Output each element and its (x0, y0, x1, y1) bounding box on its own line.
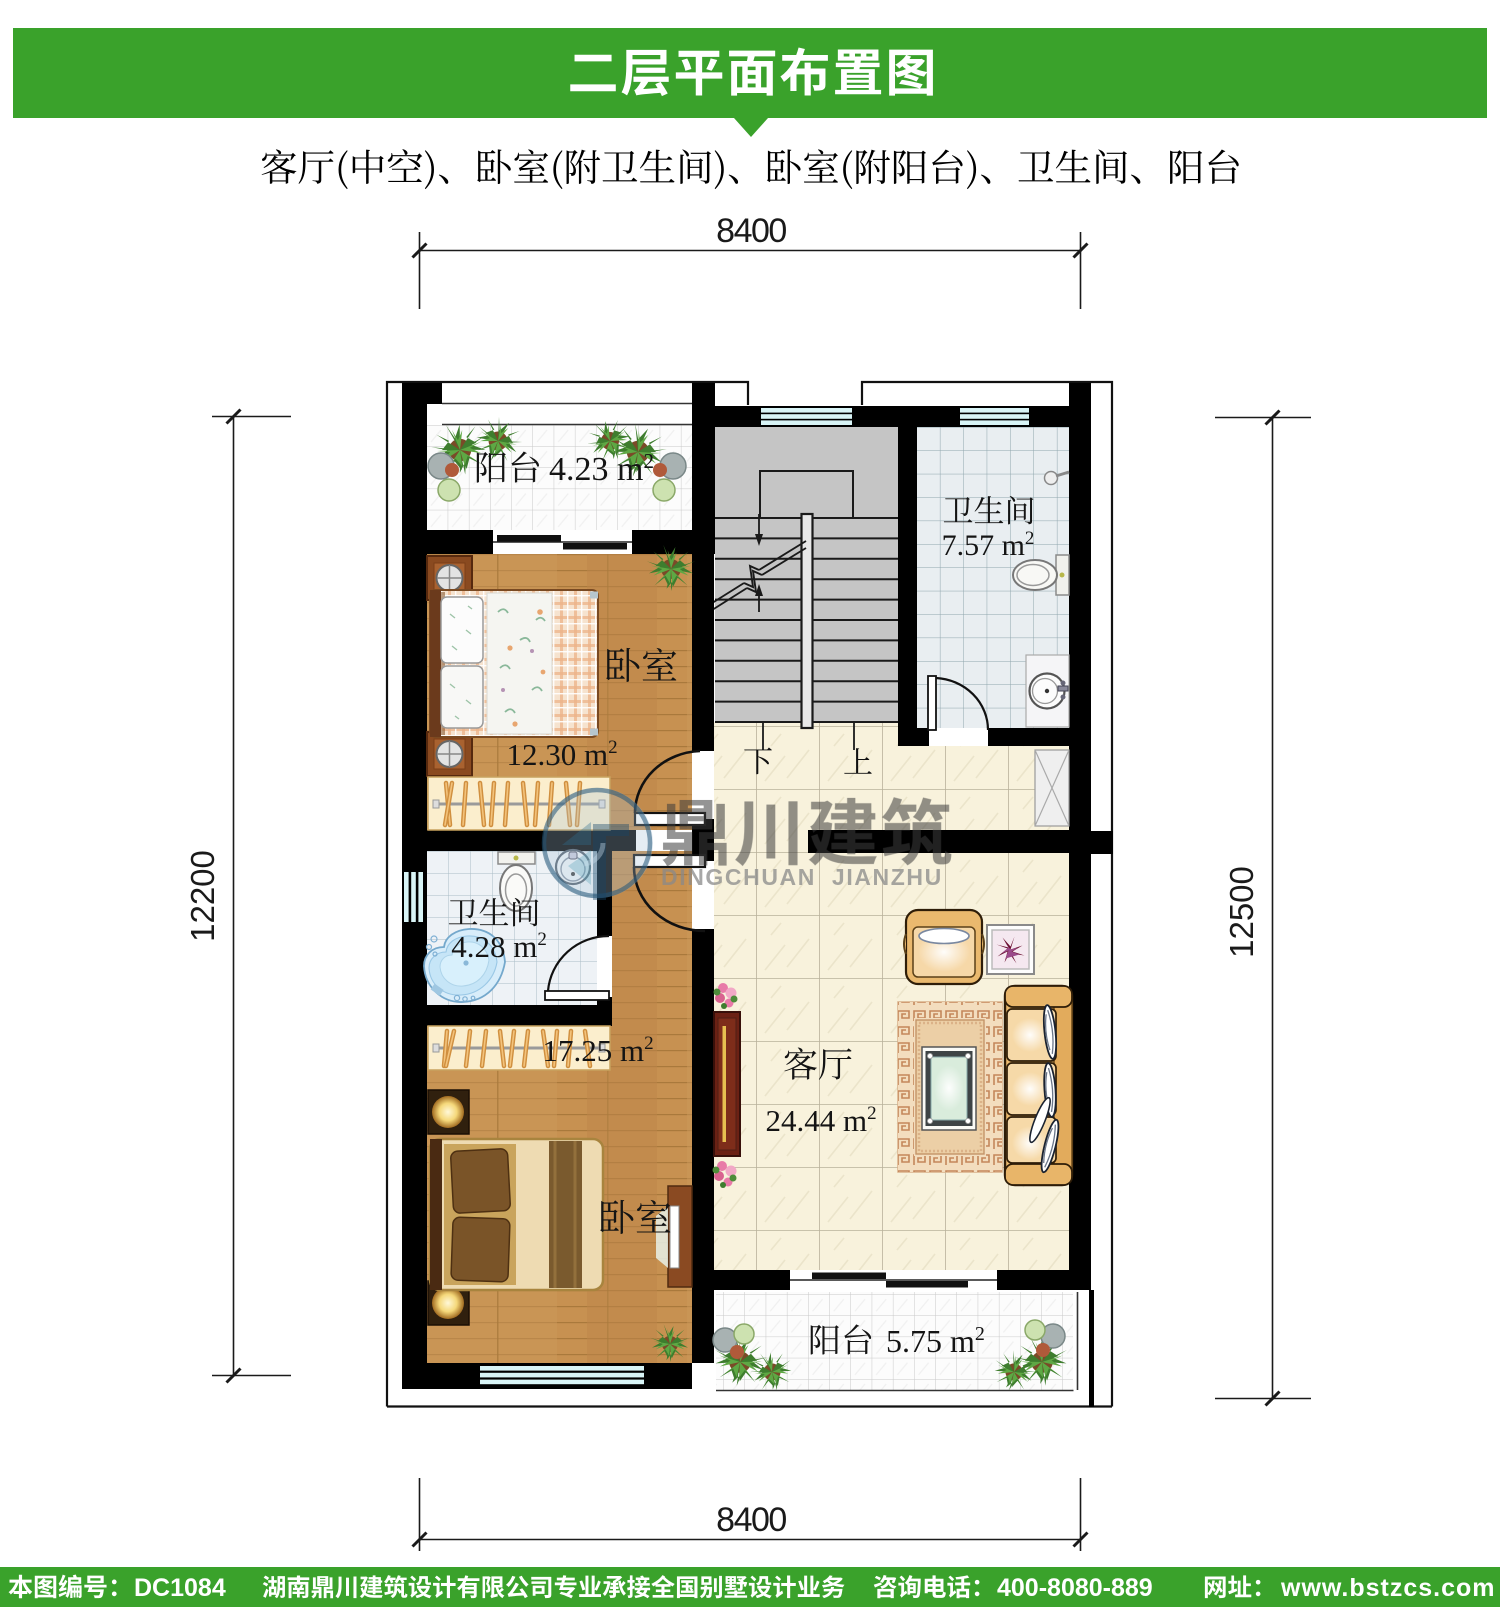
svg-text:400-8080-889: 400-8080-889 (997, 1574, 1153, 1602)
svg-text:17.25 m2: 17.25 m2 (542, 1033, 653, 1068)
svg-text:4.23 m2: 4.23 m2 (549, 449, 654, 488)
svg-text:12200: 12200 (184, 850, 221, 942)
svg-text:12500: 12500 (1223, 866, 1260, 958)
svg-text:5.75 m2: 5.75 m2 (886, 1323, 985, 1359)
svg-text:4.28 m2: 4.28 m2 (451, 929, 547, 964)
svg-text:www.bstzcs.com: www.bstzcs.com (1280, 1574, 1496, 1602)
svg-text:DC1084: DC1084 (134, 1574, 226, 1602)
svg-text:24.44 m2: 24.44 m2 (765, 1103, 876, 1138)
svg-text:12.30 m2: 12.30 m2 (506, 737, 617, 772)
svg-text:7.57 m2: 7.57 m2 (942, 528, 1035, 562)
svg-text:8400: 8400 (716, 212, 786, 250)
svg-text:8400: 8400 (716, 1501, 786, 1539)
svg-text:DINGCHUAN JIANZHU: DINGCHUAN JIANZHU (661, 864, 943, 890)
